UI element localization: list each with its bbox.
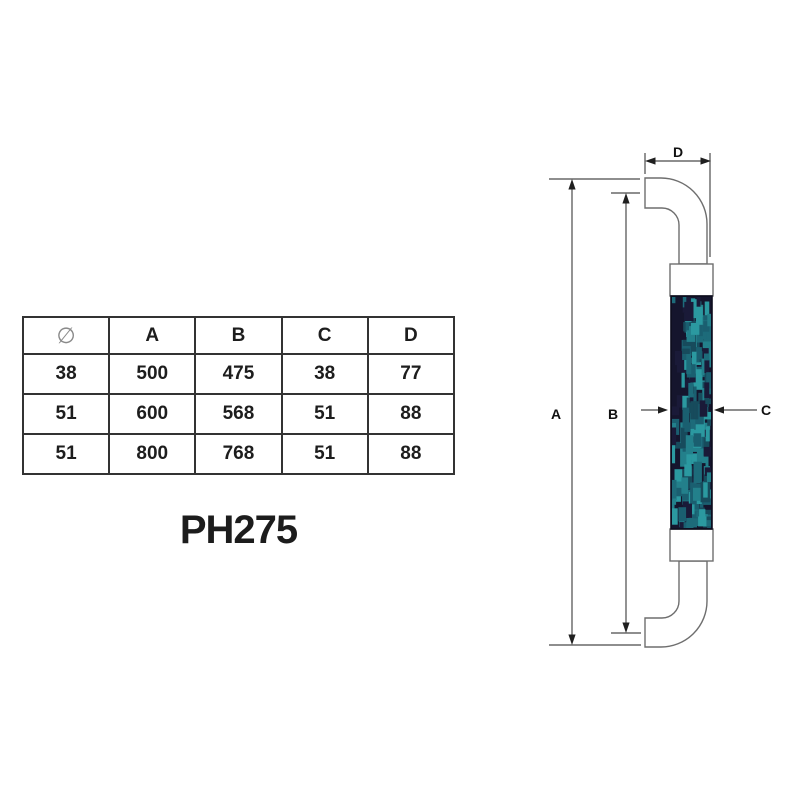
handle-bottom-elbow (645, 561, 707, 647)
dimension-c-label: C (761, 402, 771, 418)
dimension-c-arrow-left (714, 406, 724, 413)
handle-body (645, 178, 715, 647)
dimension-b-label: B (608, 406, 618, 422)
dimension-a: A (549, 179, 641, 645)
handle-top-collar (670, 264, 713, 296)
handle-top-elbow (645, 178, 707, 264)
dimension-a-arrow-down (568, 635, 575, 646)
dimension-d-arrow-left (645, 157, 656, 164)
dimension-a-label: A (551, 406, 561, 422)
dimension-b-arrow-down (622, 623, 629, 634)
dimension-b-arrow-up (622, 193, 629, 204)
handle-bottom-collar (670, 529, 713, 561)
dimension-c-arrow-right (658, 406, 668, 413)
dimension-b: B (608, 193, 641, 633)
pull-handle-technical-drawing: A B C D (0, 0, 800, 800)
dimension-a-arrow-up (568, 179, 575, 190)
dimension-d-label: D (673, 144, 683, 160)
